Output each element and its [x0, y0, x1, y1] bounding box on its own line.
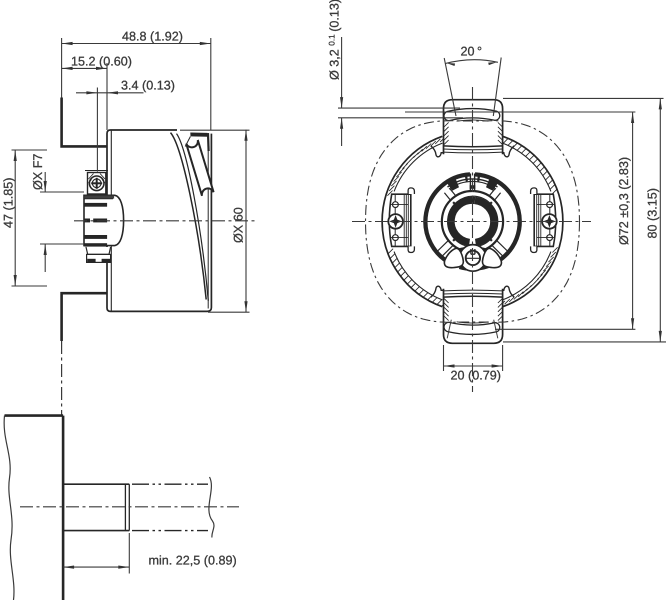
svg-text:ØX 60: ØX 60 — [232, 207, 246, 243]
svg-text:ØX F7: ØX F7 — [31, 154, 45, 190]
svg-text:20 °: 20 ° — [461, 45, 483, 59]
svg-text:15.2 (0.60): 15.2 (0.60) — [71, 54, 132, 68]
svg-text:min. 22,5 (0.89): min. 22,5 (0.89) — [149, 554, 237, 568]
svg-text:48.8 (1.92): 48.8 (1.92) — [122, 30, 183, 44]
svg-text:Ø72 ±0,3 (2.83): Ø72 ±0,3 (2.83) — [617, 157, 631, 245]
svg-text:80 (3.15): 80 (3.15) — [646, 188, 660, 238]
svg-text:47 (1.85): 47 (1.85) — [2, 178, 16, 228]
svg-text:3.4 (0.13): 3.4 (0.13) — [121, 79, 175, 93]
svg-text:20 (0.79): 20 (0.79) — [451, 369, 501, 383]
